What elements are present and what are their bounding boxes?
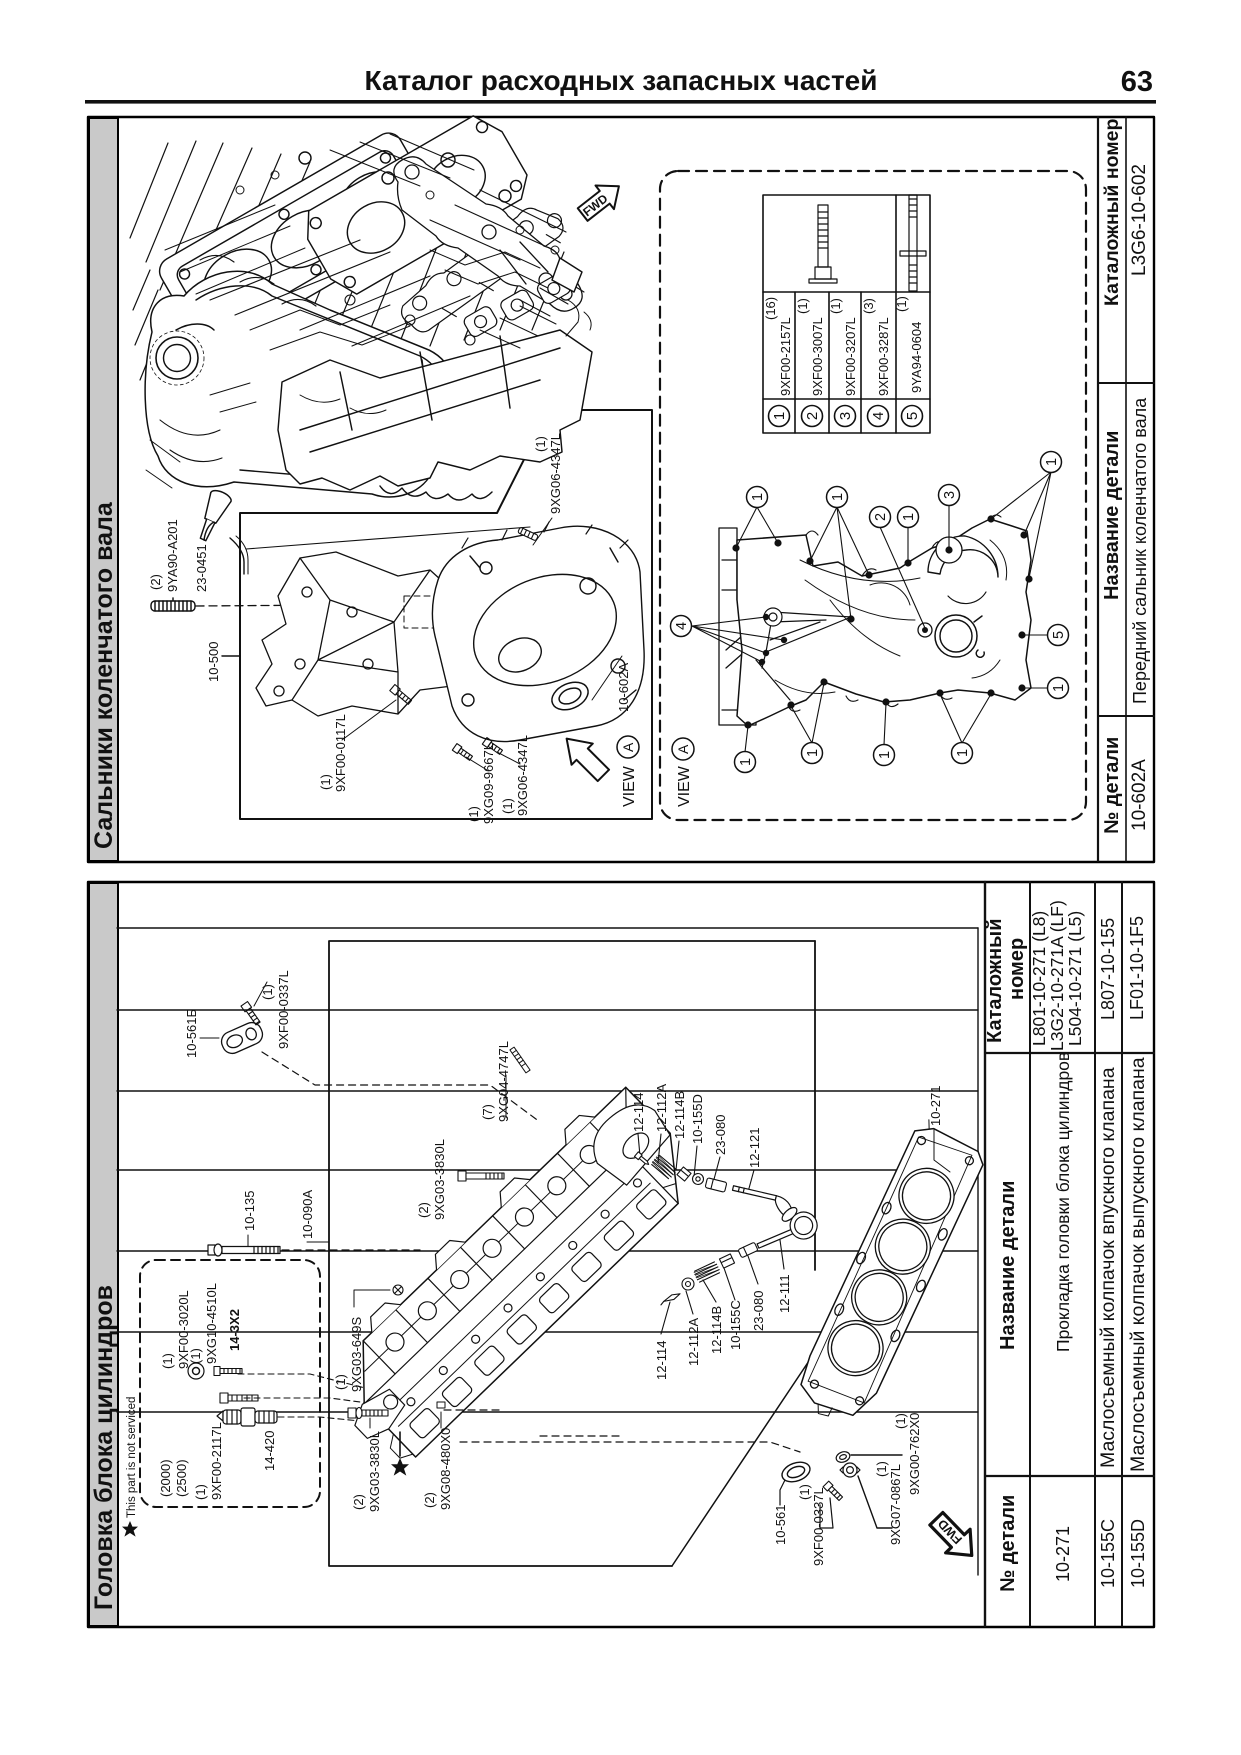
svg-text:1: 1 xyxy=(1044,458,1060,466)
svg-text:23-080: 23-080 xyxy=(713,1115,728,1155)
svg-text:12-114: 12-114 xyxy=(654,1340,669,1380)
svg-text:3: 3 xyxy=(837,412,854,420)
svg-text:9XG00-762X0: 9XG00-762X0 xyxy=(907,1413,922,1495)
svg-text:Передний сальник коленчатого в: Передний сальник коленчатого вала xyxy=(1130,397,1150,704)
svg-text:12-121: 12-121 xyxy=(747,1128,762,1168)
svg-text:10-155C: 10-155C xyxy=(728,1300,743,1350)
svg-text:23-0451: 23-0451 xyxy=(194,544,209,592)
svg-text:Каталог расходных запасных час: Каталог расходных запасных частей xyxy=(365,65,878,96)
svg-text:9XG08-480X0: 9XG08-480X0 xyxy=(438,1428,453,1510)
svg-text:1: 1 xyxy=(830,493,846,501)
svg-text:9XF00-3207L: 9XF00-3207L xyxy=(843,317,858,396)
svg-text:L504-10-271 (L5): L504-10-271 (L5) xyxy=(1065,911,1085,1046)
svg-text:№ детали: № детали xyxy=(1101,737,1123,834)
svg-text:9XG06-4347L: 9XG06-4347L xyxy=(548,433,563,514)
svg-text:10-155D: 10-155D xyxy=(690,1094,705,1144)
svg-text:23-080: 23-080 xyxy=(751,1291,766,1331)
svg-text:№ детали: № детали xyxy=(997,1495,1019,1592)
svg-text:10-271: 10-271 xyxy=(928,1086,943,1126)
svg-text:Маслосъемный колпачок впускног: Маслосъемный колпачок впускного клапана xyxy=(1097,1067,1119,1468)
svg-text:9XG03-649S: 9XG03-649S xyxy=(349,1317,364,1392)
svg-text:1: 1 xyxy=(805,749,821,757)
svg-text:9XF00-3287L: 9XF00-3287L xyxy=(876,317,891,396)
svg-text:(1): (1) xyxy=(466,806,481,822)
svg-text:9XF00-0337L: 9XF00-0337L xyxy=(811,1487,826,1566)
svg-text:Название детали: Название детали xyxy=(997,1181,1019,1350)
svg-text:Название детали: Название детали xyxy=(1101,431,1123,600)
svg-text:10-561: 10-561 xyxy=(773,1505,788,1545)
svg-text:12-112A: 12-112A xyxy=(654,1083,669,1132)
svg-text:Маслосъемный колпачок выпускно: Маслосъемный колпачок выпускного клапана xyxy=(1127,1057,1149,1472)
svg-text:(1): (1) xyxy=(500,798,515,814)
svg-text:1: 1 xyxy=(1051,684,1067,692)
svg-text:10-271: 10-271 xyxy=(1053,1526,1073,1582)
svg-text:(1): (1) xyxy=(318,774,333,790)
svg-text:(1): (1) xyxy=(160,1353,175,1369)
svg-text:(1): (1) xyxy=(828,298,843,314)
svg-text:1: 1 xyxy=(738,758,754,766)
svg-text:1: 1 xyxy=(955,749,971,757)
svg-text:A: A xyxy=(620,742,636,752)
svg-text:(2): (2) xyxy=(422,1492,437,1508)
svg-text:This part is not serviced: This part is not serviced xyxy=(126,1397,138,1518)
svg-text:номер: номер xyxy=(1006,938,1028,1000)
svg-text:14-420: 14-420 xyxy=(262,1431,277,1471)
svg-text:1: 1 xyxy=(901,513,917,521)
svg-text:(1): (1) xyxy=(795,298,810,314)
svg-text:(1): (1) xyxy=(333,1374,348,1390)
svg-text:9XG03-3830L: 9XG03-3830L xyxy=(367,1431,382,1512)
svg-text:63: 63 xyxy=(1121,66,1153,98)
svg-text:9XG03-3830L: 9XG03-3830L xyxy=(432,1139,447,1220)
svg-text:(2): (2) xyxy=(416,1202,431,1218)
svg-text:5: 5 xyxy=(1051,631,1067,639)
svg-text:(2): (2) xyxy=(351,1494,366,1510)
svg-text:Каталожный: Каталожный xyxy=(984,918,1006,1043)
svg-text:4: 4 xyxy=(674,622,690,630)
svg-text:Каталожный номер: Каталожный номер xyxy=(1101,118,1123,306)
svg-text:9XG10-4510L: 9XG10-4510L xyxy=(204,1283,219,1364)
svg-text:9XF00-0117L: 9XF00-0117L xyxy=(333,714,348,792)
svg-text:(1): (1) xyxy=(260,984,275,1000)
svg-text:(16): (16) xyxy=(763,297,778,320)
svg-text:10-602A: 10-602A xyxy=(616,663,631,712)
svg-text:9XG06-4347L: 9XG06-4347L xyxy=(515,735,530,816)
svg-text:12-114B: 12-114B xyxy=(709,1306,724,1354)
svg-text:10-155D: 10-155D xyxy=(1128,1519,1148,1588)
svg-text:(2): (2) xyxy=(148,574,163,590)
svg-text:(3): (3) xyxy=(861,298,876,314)
svg-text:9YA90-A201: 9YA90-A201 xyxy=(165,519,180,592)
svg-text:9XG07-0867L: 9XG07-0867L xyxy=(888,1464,903,1545)
svg-text:2: 2 xyxy=(804,412,821,420)
svg-text:VIEW: VIEW xyxy=(621,765,638,807)
svg-text:10-602A: 10-602A xyxy=(1129,759,1150,831)
svg-text:12-114B: 12-114B xyxy=(672,1091,687,1139)
svg-text:2: 2 xyxy=(873,513,889,521)
svg-text:9XG04-4747L: 9XG04-4747L xyxy=(496,1041,511,1122)
svg-text:A: A xyxy=(675,744,691,754)
svg-text:(1): (1) xyxy=(893,1413,908,1429)
svg-text:VIEW: VIEW xyxy=(676,765,693,807)
svg-text:10-090A: 10-090A xyxy=(300,1190,315,1239)
svg-text:(1): (1) xyxy=(188,1348,203,1364)
svg-text:10-155C: 10-155C xyxy=(1098,1519,1118,1588)
svg-text:(1): (1) xyxy=(894,296,909,312)
svg-text:12-112A: 12-112A xyxy=(686,1317,701,1366)
svg-text:L801-10-271 (L8): L801-10-271 (L8) xyxy=(1029,911,1049,1046)
svg-text:L3G2-10-271A (LF): L3G2-10-271A (LF) xyxy=(1047,900,1067,1051)
svg-text:10-561Б: 10-561Б xyxy=(184,1009,199,1058)
svg-text:9XG09-9667L: 9XG09-9667L xyxy=(481,743,496,824)
svg-text:1: 1 xyxy=(750,493,766,501)
svg-text:L807-10-155: L807-10-155 xyxy=(1098,918,1118,1020)
svg-text:LF01-10-1F5: LF01-10-1F5 xyxy=(1127,916,1147,1020)
svg-text:1: 1 xyxy=(771,412,788,420)
svg-text:Сальники коленчатого вала: Сальники коленчатого вала xyxy=(90,501,118,849)
svg-text:14-3X2: 14-3X2 xyxy=(227,1309,242,1351)
svg-text:12-111: 12-111 xyxy=(777,1274,792,1313)
svg-text:12-114: 12-114 xyxy=(631,1092,646,1132)
svg-text:L3G6-10-602: L3G6-10-602 xyxy=(1129,164,1150,276)
svg-text:4: 4 xyxy=(870,412,887,420)
svg-text:9XF00-0337L: 9XF00-0337L xyxy=(276,970,291,1049)
svg-text:9XF00-3007L: 9XF00-3007L xyxy=(810,317,825,396)
svg-text:(1): (1) xyxy=(193,1484,208,1500)
svg-text:Головка блока цилиндров: Головка блока цилиндров xyxy=(90,1285,118,1610)
svg-text:3: 3 xyxy=(942,491,958,499)
svg-text:(1): (1) xyxy=(874,1461,889,1477)
svg-text:9YA94-0604: 9YA94-0604 xyxy=(909,322,924,393)
svg-text:10-135: 10-135 xyxy=(242,1191,257,1231)
svg-text:9XF00-2117L: 9XF00-2117L xyxy=(209,1422,224,1500)
svg-text:5: 5 xyxy=(904,412,921,420)
svg-text:(7): (7) xyxy=(480,1104,495,1120)
svg-text:Прокладка головки блока цилинд: Прокладка головки блока цилиндров xyxy=(1053,1052,1073,1352)
svg-text:9XF00-2157L: 9XF00-2157L xyxy=(778,317,793,396)
svg-text:(1): (1) xyxy=(533,436,548,452)
svg-text:(1): (1) xyxy=(797,1484,812,1500)
svg-text:(2500): (2500) xyxy=(174,1459,189,1497)
svg-text:10-500: 10-500 xyxy=(206,642,221,682)
svg-text:1: 1 xyxy=(877,751,893,759)
svg-text:(2000): (2000) xyxy=(158,1459,173,1497)
